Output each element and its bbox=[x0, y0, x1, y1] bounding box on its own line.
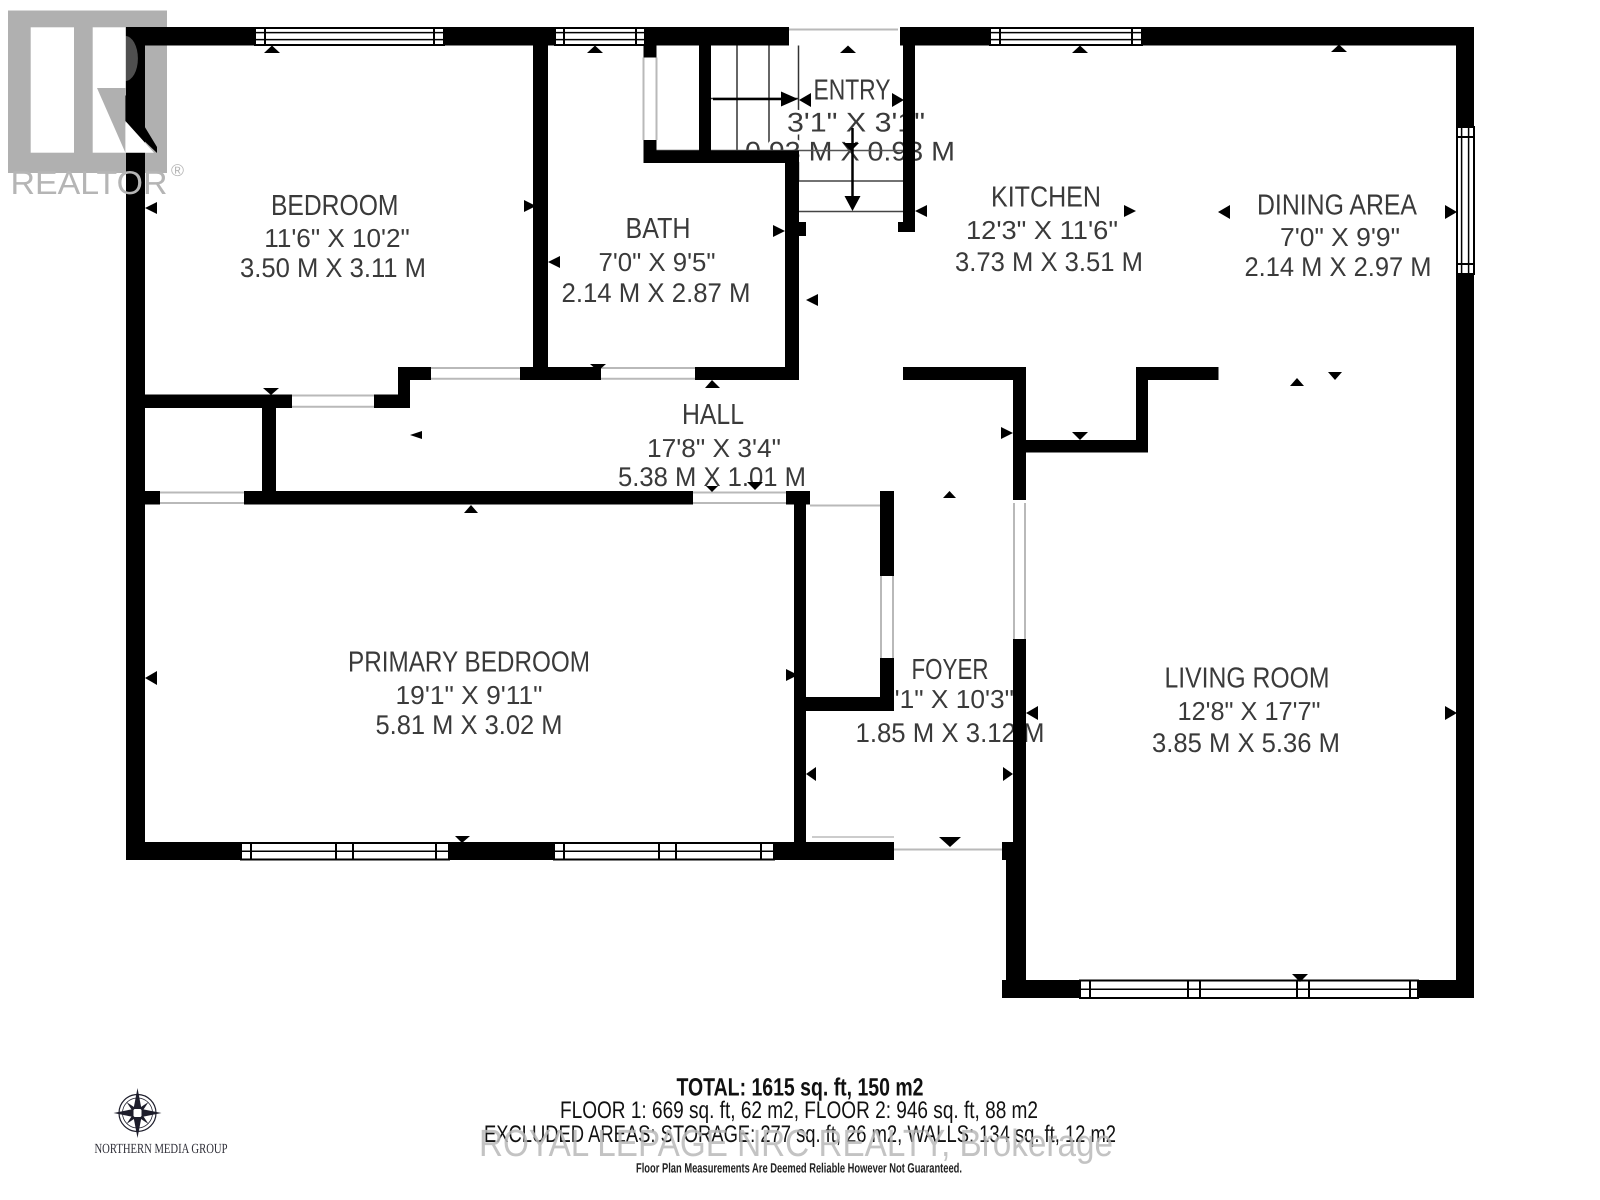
svg-text:Floor Plan Measurements Are De: Floor Plan Measurements Are Deemed Relia… bbox=[636, 1161, 962, 1176]
svg-text:NORTHERN MEDIA GROUP: NORTHERN MEDIA GROUP bbox=[95, 1142, 228, 1157]
svg-text:3.73 M X 3.51 M: 3.73 M X 3.51 M bbox=[955, 247, 1143, 277]
svg-text:19'1" X 9'11": 19'1" X 9'11" bbox=[396, 680, 543, 710]
svg-text:11'6" X 10'2": 11'6" X 10'2" bbox=[264, 223, 410, 253]
svg-text:ROYAL LEPAGE NRC REALTY, Broke: ROYAL LEPAGE NRC REALTY, Brokerage bbox=[479, 1123, 1113, 1165]
svg-text:BEDROOM: BEDROOM bbox=[271, 190, 399, 222]
svg-text:®: ® bbox=[171, 161, 184, 180]
svg-text:HALL: HALL bbox=[682, 399, 744, 431]
svg-text:5.81 M X 3.02 M: 5.81 M X 3.02 M bbox=[376, 710, 563, 740]
svg-text:3.50 M X 3.11 M: 3.50 M X 3.11 M bbox=[240, 253, 426, 283]
svg-text:2.14 M X 2.87 M: 2.14 M X 2.87 M bbox=[562, 278, 751, 308]
svg-text:2.14 M X 2.97 M: 2.14 M X 2.97 M bbox=[1245, 252, 1432, 282]
svg-text:12'8" X 17'7": 12'8" X 17'7" bbox=[1178, 696, 1321, 726]
svg-text:ENTRY: ENTRY bbox=[814, 75, 891, 107]
svg-text:17'8" X 3'4": 17'8" X 3'4" bbox=[647, 433, 781, 463]
svg-text:PRIMARY BEDROOM: PRIMARY BEDROOM bbox=[348, 647, 590, 679]
svg-text:7'0" X 9'5": 7'0" X 9'5" bbox=[599, 247, 716, 277]
svg-text:KITCHEN: KITCHEN bbox=[991, 182, 1101, 214]
svg-text:3.85 M X 5.36 M: 3.85 M X 5.36 M bbox=[1152, 728, 1340, 758]
svg-text:6'1" X 10'3": 6'1" X 10'3" bbox=[880, 684, 1014, 714]
svg-text:BATH: BATH bbox=[626, 213, 691, 245]
svg-text:FLOOR 1: 669 sq. ft, 62 m2, FL: FLOOR 1: 669 sq. ft, 62 m2, FLOOR 2: 946… bbox=[560, 1097, 1038, 1124]
svg-text:12'3" X 11'6": 12'3" X 11'6" bbox=[966, 215, 1118, 245]
svg-text:LIVING ROOM: LIVING ROOM bbox=[1165, 663, 1330, 695]
svg-text:DINING AREA: DINING AREA bbox=[1257, 190, 1418, 222]
svg-text:REALTOR: REALTOR bbox=[11, 164, 168, 201]
svg-text:7'0" X 9'9": 7'0" X 9'9" bbox=[1280, 222, 1400, 252]
svg-text:FOYER: FOYER bbox=[912, 654, 989, 686]
